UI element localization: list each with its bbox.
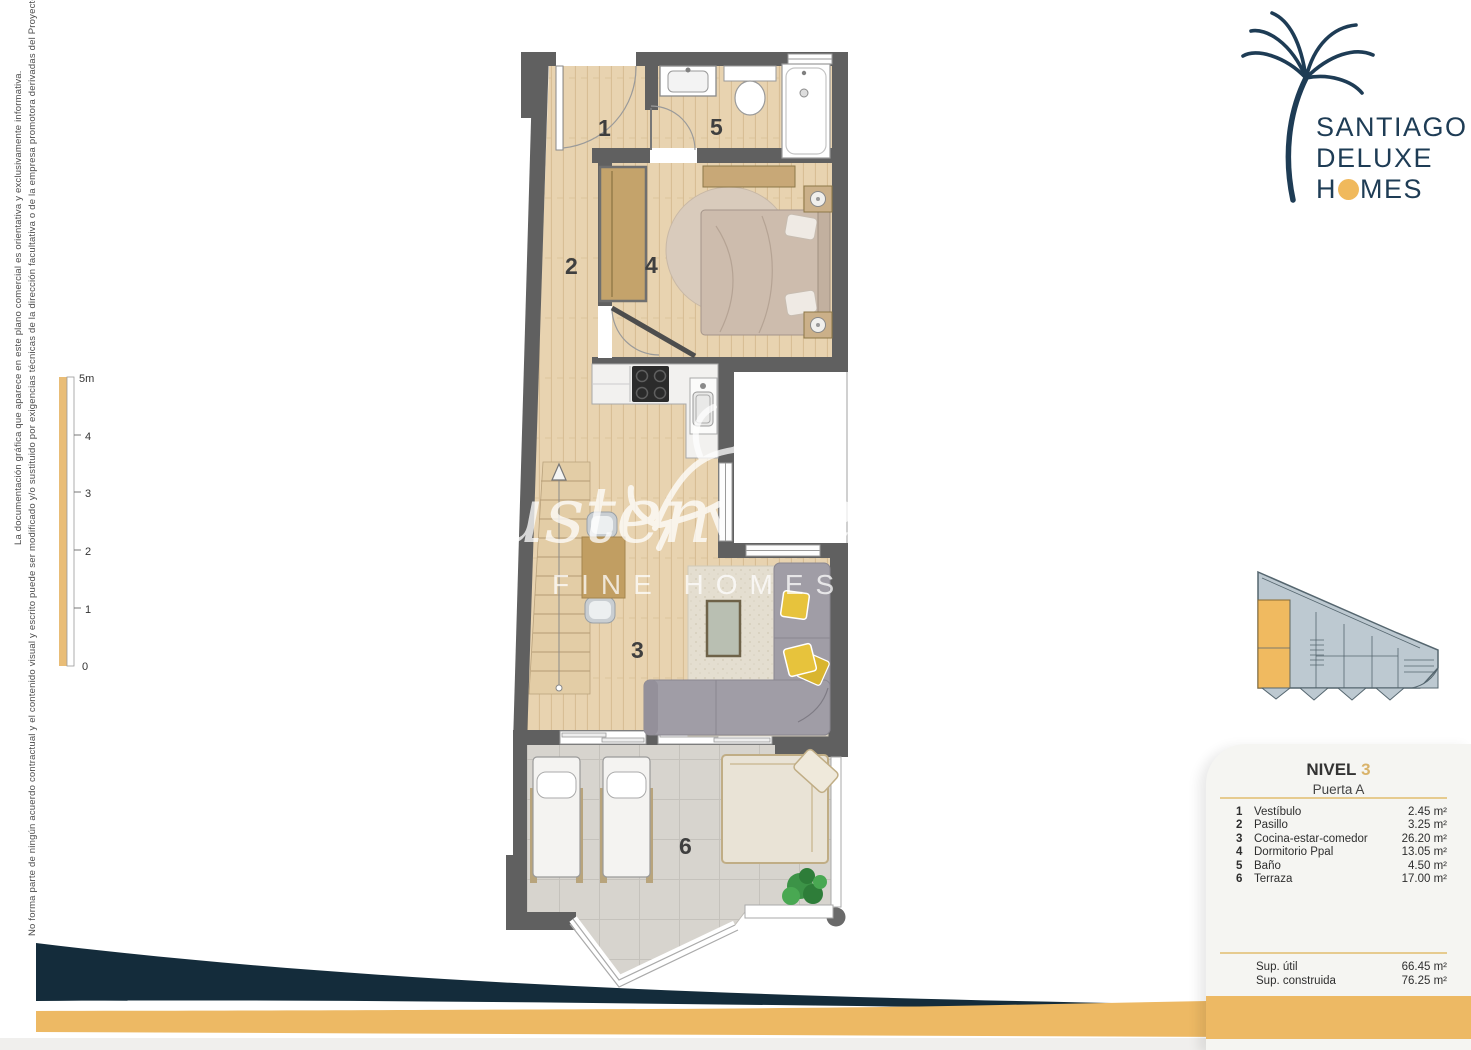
level-number: 3	[1361, 760, 1370, 779]
sun-lounger	[600, 757, 653, 883]
room-label-4: 4	[645, 252, 658, 278]
total-row: Sup. construida76.25 m²	[1206, 974, 1471, 988]
scale-label-0: 0	[82, 661, 88, 673]
level-title: NIVEL 3	[1206, 760, 1471, 780]
room-label-3: 3	[631, 637, 644, 663]
floor-plan: 1 2 3 4 5 6 Austen Realty FINE HOMES & V…	[432, 52, 1083, 987]
disclaimer-line-1: La documentación gráfica que aparece en …	[13, 70, 24, 545]
watermark-script-1: Austen	[432, 471, 712, 561]
logo-wordmark: SANTIAGO DELUXE HMES	[1316, 112, 1468, 205]
logo-line-1: SANTIAGO	[1316, 112, 1468, 143]
logo-line-3: HMES	[1316, 174, 1468, 205]
scale-label-1: 1	[85, 604, 91, 616]
scale-label-3: 3	[85, 488, 91, 500]
shower-tub	[782, 64, 830, 158]
toilet-tank	[724, 66, 776, 81]
wardrobe	[600, 167, 646, 301]
orange-dot-icon	[1338, 179, 1359, 200]
scale-label-2: 2	[85, 546, 91, 558]
brochure-page: { "logo": {"line1": "SANTIAGO", "line2":…	[0, 0, 1471, 1050]
room-label-2: 2	[565, 253, 578, 279]
door-label: Puerta A	[1206, 782, 1471, 797]
room-label-5: 5	[710, 114, 723, 140]
room-label-1: 1	[598, 115, 611, 141]
legend-card: NIVEL 3 Puerta A 1Vestíbulo2.45 m² 2Pasi…	[1206, 744, 1471, 1050]
highlighted-unit	[1258, 600, 1290, 688]
sun-lounger	[530, 757, 583, 883]
room-row: 4Dormitorio Ppal13.05 m²	[1206, 846, 1471, 859]
scale-label-5m: 5m	[79, 373, 94, 385]
room-row: 5Baño4.50 m²	[1206, 860, 1471, 873]
total-row: Sup. útil66.45 m²	[1206, 960, 1471, 974]
room-row: 3Cocina-estar-comedor26.20 m²	[1206, 833, 1471, 846]
toilet	[735, 81, 765, 115]
room-row: 6Terraza17.00 m²	[1206, 873, 1471, 886]
scale-bar: 5m 4 3 2 1 0	[59, 373, 94, 673]
card-orange-band	[1206, 996, 1471, 1039]
bedroom-bench	[703, 166, 795, 187]
sofa-chaise	[644, 680, 830, 735]
totals: Sup. útil66.45 m² Sup. construida76.25 m…	[1206, 960, 1471, 988]
yellow-pillow	[783, 643, 817, 677]
logo-line-2: DELUXE	[1316, 143, 1468, 174]
coffee-table	[707, 601, 740, 656]
watermark-subtitle: FINE HOMES & VILLAS	[552, 569, 1083, 600]
disclaimer-line-2: No forma parte de ningún acuerdo contrac…	[27, 0, 38, 936]
room-list: 1Vestíbulo2.45 m² 2Pasillo3.25 m² 3Cocin…	[1206, 806, 1471, 886]
room-label-6: 6	[679, 833, 692, 859]
entrance-door-leaf	[556, 66, 563, 150]
building-location-plan	[1258, 572, 1438, 700]
divider	[1220, 797, 1447, 799]
room-row: 1Vestíbulo2.45 m²	[1206, 806, 1471, 819]
watermark-script-2: Realty	[750, 471, 1005, 561]
scale-label-4: 4	[85, 431, 91, 443]
room-row: 2Pasillo3.25 m²	[1206, 819, 1471, 832]
pillow	[784, 214, 817, 241]
divider	[1220, 952, 1447, 954]
